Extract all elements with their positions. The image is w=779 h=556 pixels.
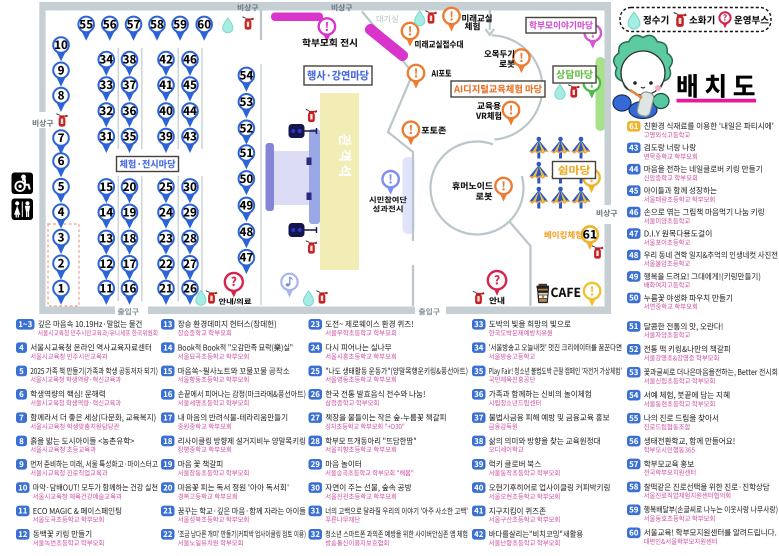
svg-text:23: 23 <box>159 230 173 246</box>
svg-text:장평중학교 학부모회: 장평중학교 학부모회 <box>178 444 232 454</box>
svg-text:8: 8 <box>58 88 65 104</box>
svg-text:국민체육진흥공단: 국민체육진흥공단 <box>489 374 536 384</box>
svg-text:배화여자고등학교: 배화여자고등학교 <box>644 280 691 290</box>
svg-text:대기실: 대기실 <box>376 13 399 25</box>
svg-text:서울무학초등학교 학부모회: 서울무학초등학교 학부모회 <box>325 328 397 338</box>
svg-text:31: 31 <box>99 129 113 145</box>
svg-text:7: 7 <box>58 130 65 146</box>
svg-text:10: 10 <box>54 37 68 53</box>
svg-text:1~3: 1~3 <box>18 319 32 330</box>
svg-text:58: 58 <box>629 482 639 493</box>
svg-text:13: 13 <box>163 319 173 330</box>
svg-text:25: 25 <box>159 179 173 195</box>
svg-text:VR체험: VR체험 <box>475 110 502 122</box>
svg-text:서울동현초등학교 학부모회: 서울동현초등학교 학부모회 <box>644 398 716 408</box>
svg-text:47: 47 <box>629 228 639 239</box>
svg-text:체험: 체험 <box>465 21 481 33</box>
svg-text:출입구: 출입구 <box>419 307 441 318</box>
svg-text:55: 55 <box>79 16 93 32</box>
svg-text:13: 13 <box>99 230 113 246</box>
svg-text:38: 38 <box>123 52 137 68</box>
svg-text:관객석: 관객석 <box>336 134 356 180</box>
svg-text:!: ! <box>409 121 414 138</box>
svg-text:서울불암초등학교: 서울불암초등학교 <box>644 258 691 268</box>
svg-text:37: 37 <box>123 77 137 93</box>
svg-text:서울강명초&강명중 학부모회: 서울강명초&강명중 학부모회 <box>644 353 720 363</box>
svg-text:?: ? <box>723 13 727 24</box>
svg-text:22: 22 <box>159 256 173 272</box>
svg-text:학부모이야기마당: 학부모이야기마당 <box>529 18 594 31</box>
svg-text:29: 29 <box>311 459 321 470</box>
svg-text:54: 54 <box>629 390 639 401</box>
svg-text:서울세명초등학교 학부모회: 서울세명초등학교 학부모회 <box>178 397 250 407</box>
svg-text:52: 52 <box>240 120 254 136</box>
svg-text:로봇: 로봇 <box>476 191 493 203</box>
svg-text:18: 18 <box>163 436 173 447</box>
svg-text:행사·강연마당: 행사·강연마당 <box>307 67 369 83</box>
svg-text:서울성북초등학교 학부모회: 서울성북초등학교 학부모회 <box>178 514 250 524</box>
svg-text:금융감독원: 금융감독원 <box>489 421 518 431</box>
svg-text:중원중학교 학부모회: 중원중학교 학부모회 <box>178 421 232 431</box>
svg-text:서울미양초등학교: 서울미양초등학교 <box>644 215 691 225</box>
svg-text:서울시흥초등학교 학부모회: 서울시흥초등학교 학부모회 <box>325 351 397 361</box>
svg-text:서울도곡초등학교 학부모회: 서울도곡초등학교 학부모회 <box>33 514 105 524</box>
svg-text:소화기: 소화기 <box>689 12 715 26</box>
svg-text:!: ! <box>501 177 506 194</box>
svg-text:15: 15 <box>163 366 173 377</box>
svg-text:49: 49 <box>240 197 254 213</box>
svg-text:39: 39 <box>474 459 484 470</box>
svg-text:48: 48 <box>240 224 254 240</box>
svg-text:28: 28 <box>183 230 197 246</box>
svg-text:24: 24 <box>159 204 173 220</box>
svg-text:미래교실접수대: 미래교실접수대 <box>415 39 464 51</box>
svg-text:체험·전시마당: 체험·전시마당 <box>120 156 176 170</box>
svg-text:서울장동초등학교 학부모회: 서울장동초등학교 학부모회 <box>178 467 250 477</box>
svg-text:14: 14 <box>99 204 113 220</box>
svg-text:35: 35 <box>474 366 484 377</box>
svg-text:고명외식고등학교: 고명외식고등학교 <box>644 130 691 140</box>
svg-text:신암중학교 학부모회: 신암중학교 학부모회 <box>644 172 698 182</box>
svg-text:44: 44 <box>183 103 197 119</box>
svg-text:!: ! <box>325 18 330 35</box>
svg-text:운영부스: 운영부스 <box>734 12 769 26</box>
svg-text:33: 33 <box>99 77 113 93</box>
svg-text:서울지향초등학교 학부모회: 서울지향초등학교 학부모회 <box>325 444 397 454</box>
svg-text:서울시교육청 학생역량·혁신교육과: 서울시교육청 학생역량·혁신교육과 <box>30 374 122 384</box>
svg-text:출입구: 출입구 <box>118 307 140 318</box>
svg-text:12: 12 <box>18 529 28 540</box>
svg-text:45: 45 <box>183 77 197 93</box>
svg-text:46: 46 <box>183 52 197 68</box>
svg-text:서울시교육청 초등교육과: 서울시교육청 초등교육과 <box>30 444 96 454</box>
svg-text:17: 17 <box>163 412 173 423</box>
svg-text:2: 2 <box>58 255 65 271</box>
svg-text:시립청소년드림센터: 시립청소년드림센터 <box>489 397 541 407</box>
svg-text:57: 57 <box>629 459 639 470</box>
svg-text:50: 50 <box>629 293 639 304</box>
svg-text:34: 34 <box>474 342 484 353</box>
svg-text:AI디지털교육체험 마당: AI디지털교육체험 마당 <box>453 81 542 95</box>
svg-text:44: 44 <box>629 164 639 175</box>
svg-text:60: 60 <box>629 528 639 539</box>
svg-text:33: 33 <box>474 319 484 330</box>
svg-text:34: 34 <box>99 52 113 68</box>
svg-text:서울시교육청 학생역량·혁신교육과: 서울시교육청 학생역량·혁신교육과 <box>30 397 122 407</box>
svg-text:서울신림초등학교 학부모회: 서울신림초등학교 학부모회 <box>644 375 716 385</box>
svg-text:서연중학교 학부모회: 서연중학교 학부모회 <box>644 301 698 311</box>
svg-text:56: 56 <box>629 436 639 447</box>
svg-text:31: 31 <box>311 506 321 517</box>
svg-text:42: 42 <box>159 52 173 68</box>
svg-text:전국학부모지원센터: 전국학부모지원센터 <box>644 467 696 477</box>
svg-text:!: ! <box>590 282 595 299</box>
svg-text:삼정중학교 학부모회: 삼정중학교 학부모회 <box>325 397 379 407</box>
svg-text:서울항동초등학교 학부모회: 서울항동초등학교 학부모회 <box>178 374 250 384</box>
svg-text:35: 35 <box>123 129 137 145</box>
svg-text:32: 32 <box>311 529 321 540</box>
svg-text:서울포이초등학교: 서울포이초등학교 <box>644 237 691 247</box>
svg-text:서울오현초등학교 학부모회: 서울오현초등학교 학부모회 <box>489 491 561 501</box>
svg-text:50: 50 <box>240 171 254 187</box>
svg-text:서울시교육청 진로직업교육과: 서울시교육청 진로직업교육과 <box>30 467 108 477</box>
svg-text:38: 38 <box>474 436 484 447</box>
svg-text:경복고등학교 학부모회: 경복고등학교 학부모회 <box>178 491 238 501</box>
svg-text:서울방송고등학교: 서울방송고등학교 <box>489 351 536 361</box>
svg-text:41: 41 <box>159 77 173 93</box>
svg-text:56: 56 <box>103 16 117 32</box>
svg-text:6: 6 <box>58 153 65 169</box>
svg-text:42: 42 <box>474 529 484 540</box>
svg-text:한국도박문제예방치유원: 한국도박문제예방치유원 <box>489 328 553 338</box>
svg-text:43: 43 <box>629 143 639 154</box>
svg-text:AI포토: AI포토 <box>431 68 452 80</box>
svg-text:27: 27 <box>183 256 197 272</box>
svg-text:16: 16 <box>123 281 137 297</box>
svg-text:23: 23 <box>311 319 321 330</box>
svg-text:학부모시민행동365: 학부모시민행동365 <box>644 444 696 454</box>
svg-text:51: 51 <box>240 145 254 161</box>
svg-text:40: 40 <box>159 103 173 119</box>
svg-text:39: 39 <box>159 129 173 145</box>
svg-text:55: 55 <box>629 413 639 424</box>
svg-text:로봇: 로봇 <box>499 58 515 70</box>
svg-text:안내/의료: 안내/의료 <box>219 297 253 307</box>
svg-text:베이킹체험: 베이킹체험 <box>544 229 583 241</box>
svg-text:26: 26 <box>311 389 321 400</box>
svg-text:면목중학교 학부모회: 면목중학교 학부모회 <box>644 151 698 161</box>
svg-text:서울자양초등학교: 서울자양초등학교 <box>644 330 691 340</box>
svg-text:!: ! <box>519 49 524 66</box>
svg-text:48: 48 <box>629 250 639 261</box>
svg-text:서울동작초등학교 학부모회: 서울동작초등학교 학부모회 <box>489 467 561 477</box>
svg-text:36: 36 <box>123 103 137 119</box>
svg-text:서울시교육청 민주시민교육과/유니세프 한국위원회: 서울시교육청 민주시민교육과/유니세프 한국위원회 <box>38 328 158 338</box>
svg-text:7: 7 <box>19 412 24 423</box>
svg-text:28: 28 <box>311 436 321 447</box>
svg-text:서울시교육청 체육건강예술교육과: 서울시교육청 체육건강예술교육과 <box>33 491 123 501</box>
svg-text:21: 21 <box>159 281 173 297</box>
svg-text:서울난향초등학교 학부모회: 서울난향초등학교 학부모회 <box>489 537 561 547</box>
svg-text:46: 46 <box>629 207 639 218</box>
svg-text:안내: 안내 <box>489 296 505 307</box>
svg-text:성과전시: 성과전시 <box>373 204 404 215</box>
svg-text:!: ! <box>388 171 393 188</box>
svg-text:30: 30 <box>311 482 321 493</box>
svg-text:49: 49 <box>629 271 639 282</box>
svg-text:비상구: 비상구 <box>331 3 353 14</box>
svg-text:서울시교육청 학생맞춤지원담당관: 서울시교육청 학생맞춤지원담당관 <box>30 421 120 431</box>
svg-text:서울진로직업체험지원센터협의회: 서울진로직업체험지원센터협의회 <box>644 490 731 500</box>
svg-text:12: 12 <box>99 256 113 272</box>
svg-text:서울숭곡초등학교 학부모회 "해봄": 서울숭곡초등학교 학부모회 "해봄" <box>325 467 414 477</box>
svg-text:51: 51 <box>629 321 639 332</box>
svg-text:포토존: 포토존 <box>421 125 446 137</box>
svg-text:53: 53 <box>240 94 254 110</box>
svg-text:서울진관초등학교 학부모회: 서울진관초등학교 학부모회 <box>325 491 397 501</box>
svg-text:8: 8 <box>19 436 24 447</box>
svg-text:방송통신이용자보호협회: 방송통신이용자보호협회 <box>325 537 389 547</box>
svg-text:진로드림협동조합: 진로드림협동조합 <box>644 421 691 431</box>
svg-text:27: 27 <box>311 412 321 423</box>
svg-text:서울노일유치원 학부모회: 서울노일유치원 학부모회 <box>178 537 244 547</box>
svg-text:61: 61 <box>629 121 639 132</box>
svg-text:11: 11 <box>18 506 28 517</box>
svg-text:60: 60 <box>197 16 211 32</box>
svg-text:정수기: 정수기 <box>643 12 669 26</box>
svg-text:대변인&서울학부모지원센터: 대변인&서울학부모지원센터 <box>644 536 718 546</box>
svg-text:14: 14 <box>163 342 173 353</box>
svg-text:성자초등학교 학부모회 "+D30": 성자초등학교 학부모회 "+D30" <box>325 421 405 431</box>
svg-text:9: 9 <box>58 62 65 78</box>
svg-text:!: ! <box>408 22 413 39</box>
svg-text:?: ? <box>231 273 237 290</box>
svg-text:20: 20 <box>163 482 173 493</box>
svg-text:21: 21 <box>163 506 173 517</box>
svg-text:서울녹번초등학교 학부모회: 서울녹번초등학교 학부모회 <box>33 537 105 547</box>
svg-text:쉼마당: 쉼마당 <box>558 163 591 178</box>
svg-text:서울태랑초등학교 학부모회: 서울태랑초등학교 학부모회 <box>644 194 716 204</box>
svg-text:37: 37 <box>474 412 484 423</box>
svg-text:6: 6 <box>19 389 24 400</box>
svg-text:4: 4 <box>19 342 24 353</box>
svg-text:오디세이학교: 오디세이학교 <box>489 444 524 454</box>
svg-text:19: 19 <box>163 459 173 470</box>
svg-text:서울구산초등학교 학부모회: 서울구산초등학교 학부모회 <box>489 514 561 524</box>
svg-text:4: 4 <box>58 204 65 220</box>
svg-text:서울시교육청 민주시민교육과: 서울시교육청 민주시민교육과 <box>30 351 108 361</box>
svg-text:58: 58 <box>150 16 164 32</box>
svg-text:26: 26 <box>183 281 197 297</box>
svg-text:20: 20 <box>123 179 137 195</box>
svg-text:서울동호초등학교 학부모회: 서울동호초등학교 학부모회 <box>644 513 716 523</box>
svg-text:?: ? <box>494 272 500 289</box>
svg-text:25: 25 <box>311 366 321 377</box>
svg-text:!: ! <box>414 64 419 81</box>
svg-text:CAFE: CAFE <box>551 282 582 301</box>
svg-text:서울영동초등학교 학부모회: 서울영동초등학교 학부모회 <box>325 374 397 384</box>
svg-text:배 치 도: 배 치 도 <box>676 67 756 104</box>
svg-text:22: 22 <box>163 529 173 540</box>
svg-text:3: 3 <box>58 230 65 246</box>
svg-text:61: 61 <box>583 226 598 242</box>
svg-text:15: 15 <box>99 179 113 195</box>
svg-text:!: ! <box>509 101 514 118</box>
svg-text:19: 19 <box>123 204 137 220</box>
svg-text:1: 1 <box>58 280 65 296</box>
svg-text:학부모회 전시: 학부모회 전시 <box>302 36 358 49</box>
svg-text:!: ! <box>449 7 454 24</box>
svg-text:서울묘곡초등학교 학부모회: 서울묘곡초등학교 학부모회 <box>178 351 250 361</box>
svg-text:53: 53 <box>629 367 639 378</box>
svg-text:24: 24 <box>311 342 321 353</box>
svg-text:비상구: 비상구 <box>237 3 259 14</box>
svg-text:16: 16 <box>163 389 173 400</box>
svg-text:29: 29 <box>183 204 197 220</box>
svg-text:57: 57 <box>127 16 141 32</box>
svg-text:5: 5 <box>58 179 65 195</box>
svg-text:47: 47 <box>240 250 254 266</box>
svg-text:40: 40 <box>474 482 484 493</box>
svg-text:45: 45 <box>629 185 639 196</box>
svg-text:11: 11 <box>99 281 113 297</box>
svg-text:32: 32 <box>99 103 113 119</box>
svg-text:비상구: 비상구 <box>596 208 618 219</box>
svg-text:41: 41 <box>474 506 484 517</box>
svg-text:5: 5 <box>19 366 24 377</box>
svg-text:30: 30 <box>183 179 197 195</box>
svg-text:9: 9 <box>19 459 24 470</box>
svg-text:36: 36 <box>474 389 484 400</box>
svg-text:비상구: 비상구 <box>32 118 54 129</box>
svg-text:52: 52 <box>629 344 639 355</box>
svg-text:59: 59 <box>629 505 639 516</box>
svg-text:10: 10 <box>18 482 28 493</box>
svg-text:18: 18 <box>123 230 137 246</box>
svg-text:17: 17 <box>123 256 137 272</box>
svg-text:푸른나무재단: 푸른나무재단 <box>325 514 361 524</box>
svg-text:59: 59 <box>173 16 187 32</box>
svg-text:43: 43 <box>183 129 197 145</box>
svg-text:54: 54 <box>240 67 254 83</box>
svg-text:상담마당: 상담마당 <box>556 66 593 81</box>
svg-text:장승중학교 학부모회: 장승중학교 학부모회 <box>178 328 232 338</box>
